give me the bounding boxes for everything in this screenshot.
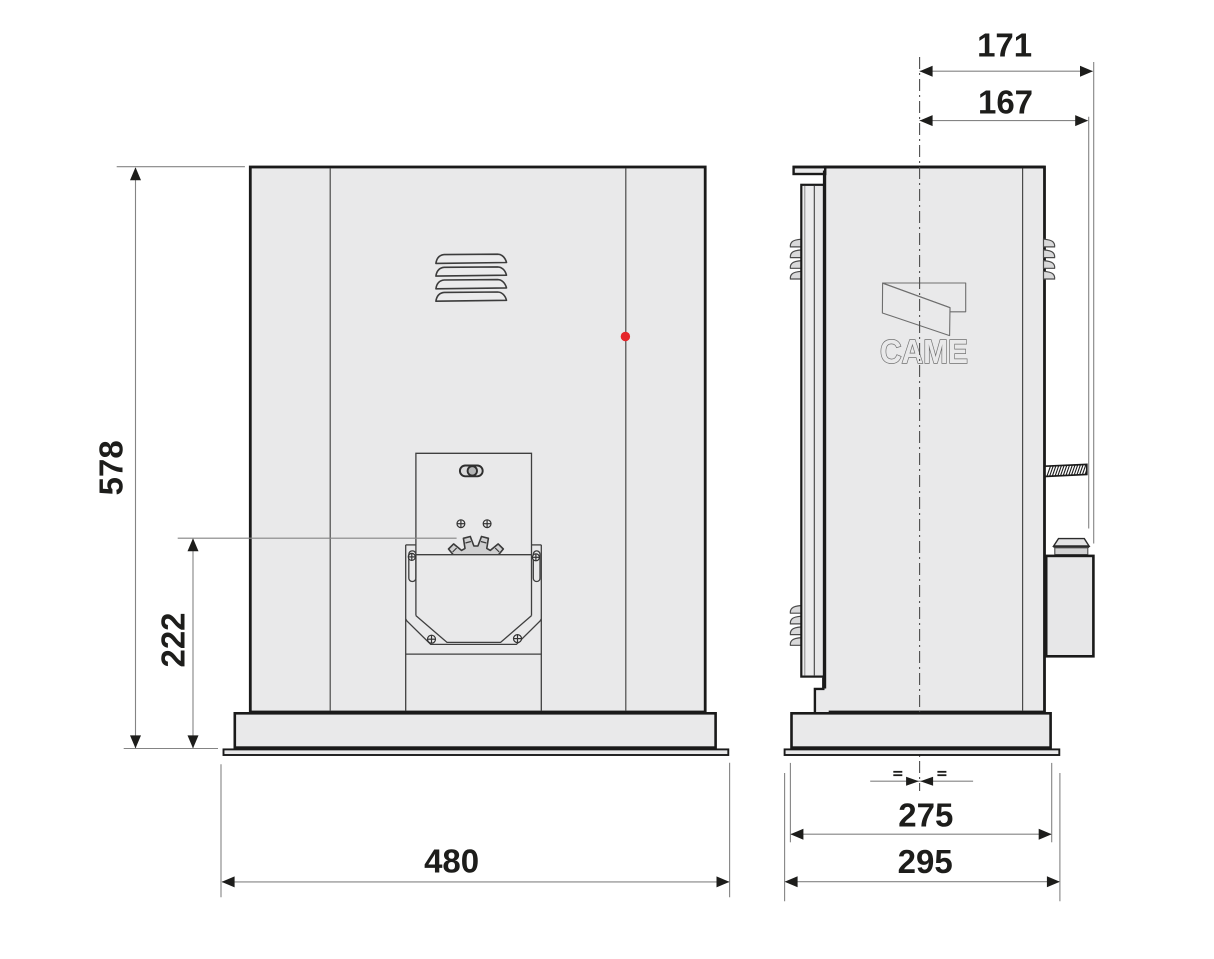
svg-text:275: 275 bbox=[898, 797, 953, 834]
svg-text:CAME: CAME bbox=[880, 333, 968, 370]
svg-text:222: 222 bbox=[155, 612, 192, 667]
svg-text:171: 171 bbox=[977, 27, 1032, 64]
svg-text:167: 167 bbox=[978, 83, 1033, 120]
svg-text:578: 578 bbox=[93, 440, 130, 495]
svg-text:295: 295 bbox=[898, 843, 953, 880]
svg-text:480: 480 bbox=[424, 843, 479, 880]
